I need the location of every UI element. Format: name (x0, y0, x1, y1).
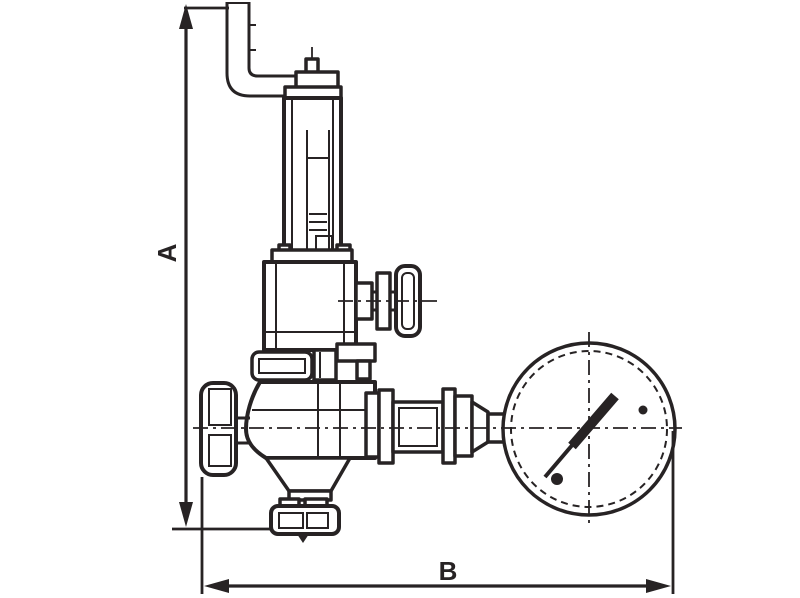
dial-marker-dot (639, 406, 648, 415)
bottom-outlet (266, 458, 350, 543)
valve-body (246, 382, 375, 458)
coupling-block (455, 396, 472, 456)
dim-b-arrow-left (204, 579, 229, 593)
needle-counterweight (551, 473, 563, 485)
junction-plug (357, 361, 370, 379)
spring-housing (284, 47, 341, 254)
pipe-outer-edge (227, 2, 296, 96)
outlet-drip-nub (297, 534, 309, 543)
valve-technical-drawing: A (0, 0, 800, 598)
dim-b-label: B (439, 556, 458, 586)
dim-a-arrow-down (179, 502, 193, 527)
gauge-coupling (366, 389, 514, 463)
bonnet (264, 245, 356, 350)
coupling-union-left (379, 390, 393, 463)
outlet-cone (266, 458, 350, 491)
gland-nut (252, 352, 312, 380)
handwheel (201, 383, 250, 475)
coupling-spool (393, 402, 443, 452)
junction-block-right (337, 344, 375, 361)
coupling-port (366, 393, 379, 457)
bonnet-body (264, 262, 356, 350)
coupling-union-right (443, 389, 455, 463)
junction-spacer (314, 350, 336, 380)
pipe-inner-edge (249, 2, 296, 76)
discharge-elbow-pipe (227, 2, 296, 96)
body-outline (246, 382, 375, 458)
dim-a-label: A (152, 243, 182, 262)
dim-b-arrow-right (646, 579, 671, 593)
coupling-reducer (472, 402, 488, 452)
